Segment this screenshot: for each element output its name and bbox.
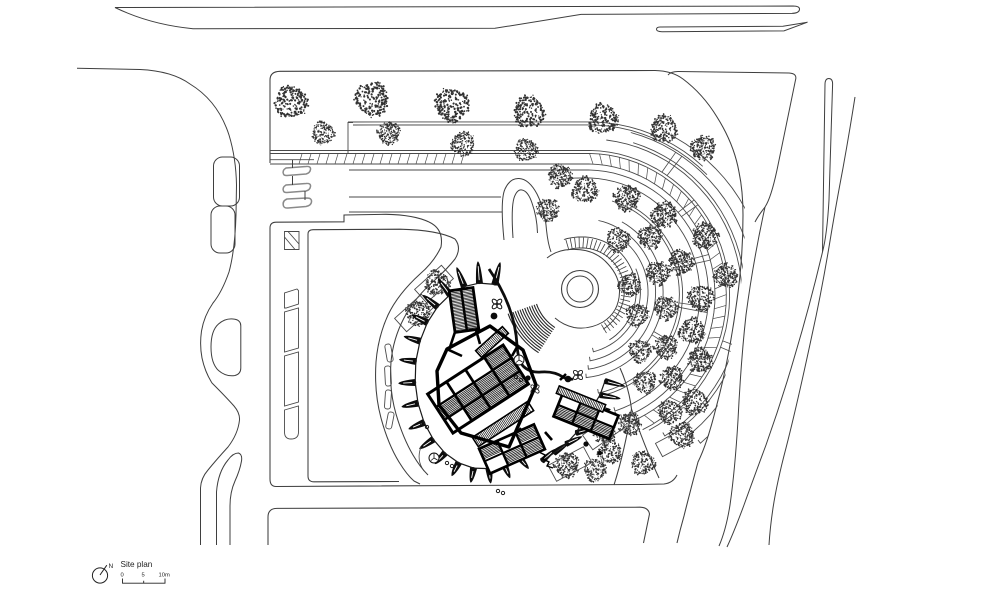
- svg-text:5: 5: [142, 573, 145, 579]
- svg-text:0: 0: [121, 573, 124, 579]
- svg-text:10m: 10m: [159, 573, 170, 579]
- svg-text:Site plan: Site plan: [121, 560, 153, 569]
- svg-text:N: N: [109, 563, 114, 570]
